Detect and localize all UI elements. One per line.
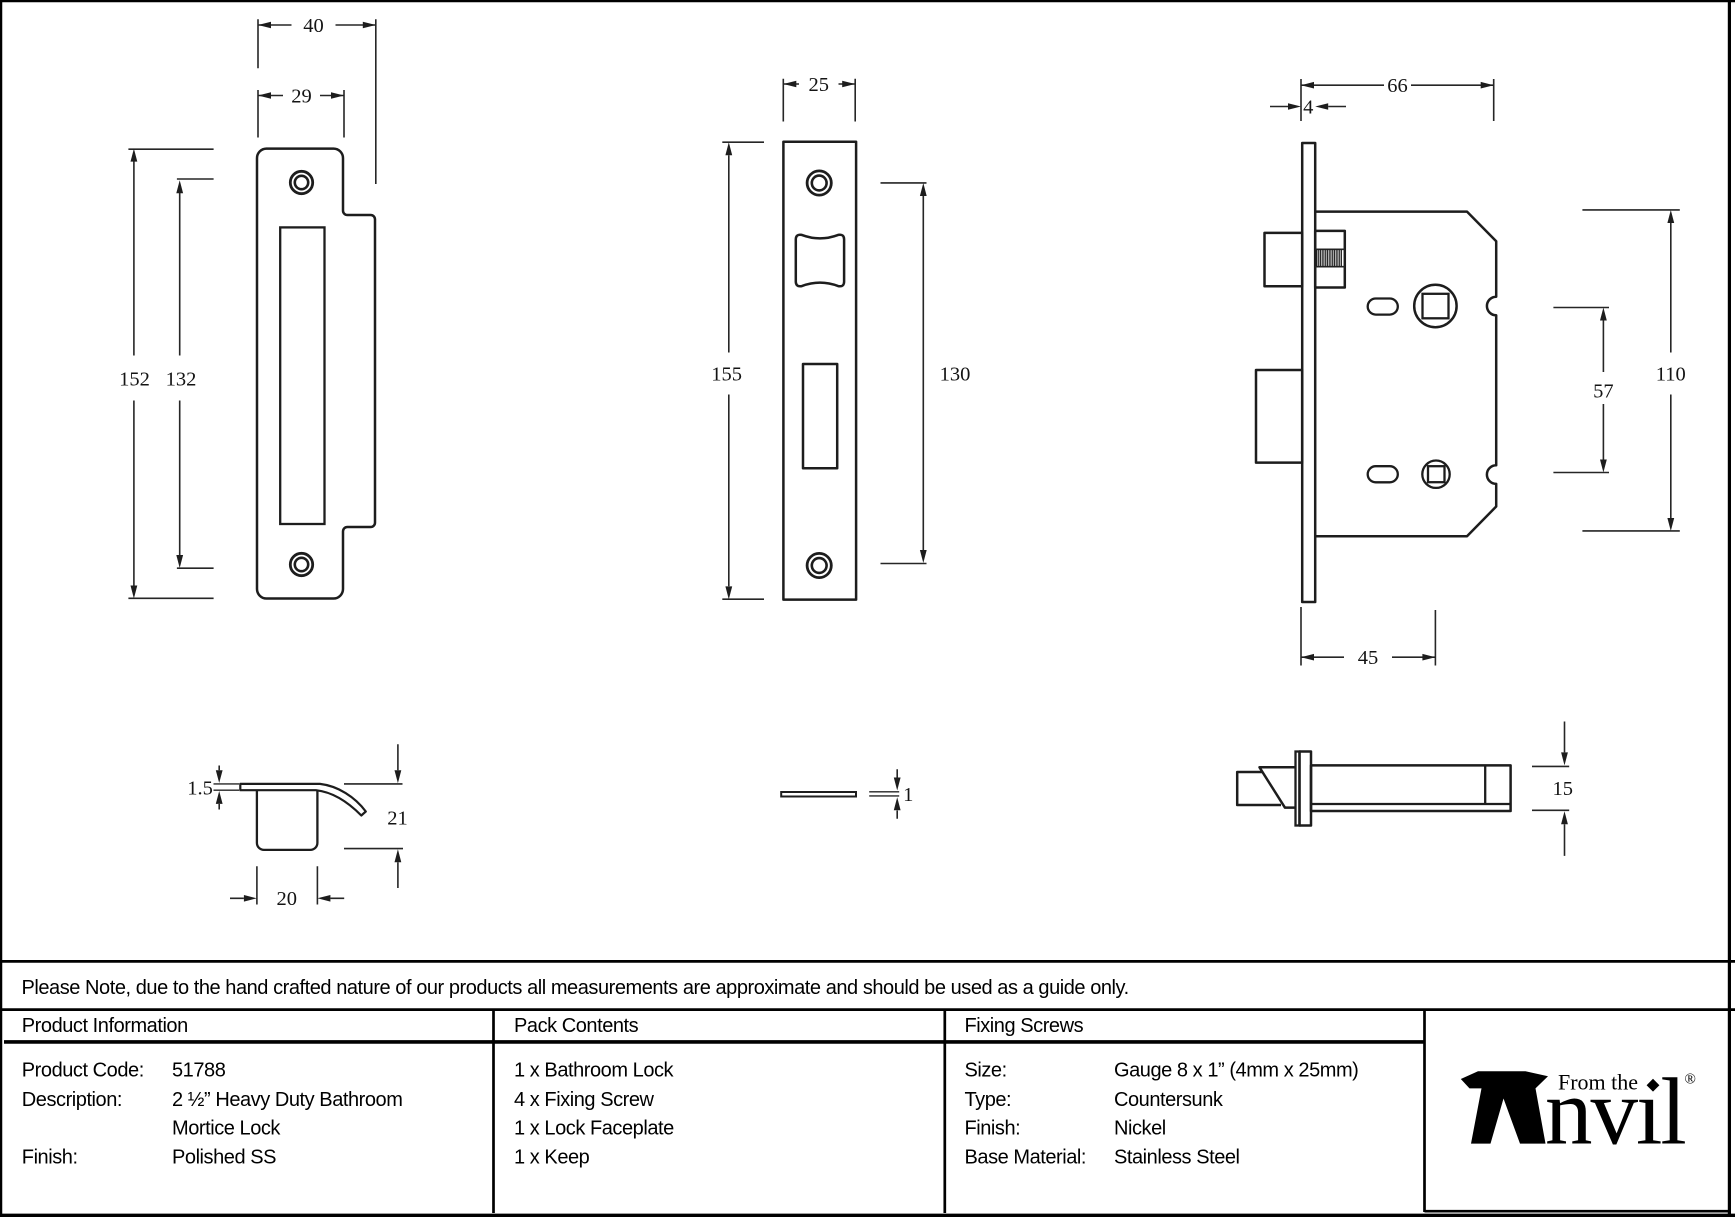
svg-text:29: 29 bbox=[291, 85, 312, 107]
svg-text:Finish:: Finish: bbox=[22, 1146, 78, 1168]
svg-text:25: 25 bbox=[809, 74, 830, 96]
svg-text:Base Material:: Base Material: bbox=[965, 1146, 1087, 1168]
svg-text:2 ½” Heavy Duty Bathroom: 2 ½” Heavy Duty Bathroom bbox=[172, 1089, 402, 1111]
svg-text:21: 21 bbox=[387, 807, 408, 829]
svg-text:130: 130 bbox=[940, 364, 971, 386]
svg-text:51788: 51788 bbox=[172, 1060, 226, 1082]
svg-text:1 x Lock Faceplate: 1 x Lock Faceplate bbox=[514, 1117, 674, 1139]
svg-text:Product Code:: Product Code: bbox=[22, 1060, 144, 1082]
svg-text:Pack Contents: Pack Contents bbox=[514, 1015, 639, 1037]
svg-text:Nickel: Nickel bbox=[1114, 1117, 1166, 1139]
svg-text:1 x Keep: 1 x Keep bbox=[514, 1146, 590, 1168]
svg-text:Description:: Description: bbox=[22, 1089, 122, 1111]
svg-text:40: 40 bbox=[303, 15, 324, 37]
svg-text:Polished SS: Polished SS bbox=[172, 1146, 276, 1168]
svg-text:Countersunk: Countersunk bbox=[1114, 1089, 1224, 1111]
svg-text:Type:: Type: bbox=[965, 1089, 1012, 1111]
svg-text:Gauge 8 x 1” (4mm x 25mm): Gauge 8 x 1” (4mm x 25mm) bbox=[1114, 1060, 1358, 1082]
svg-text:1: 1 bbox=[903, 784, 913, 806]
svg-text:Stainless Steel: Stainless Steel bbox=[1114, 1146, 1240, 1168]
svg-text:4: 4 bbox=[1303, 96, 1313, 118]
svg-text:57: 57 bbox=[1593, 381, 1614, 403]
svg-text:1.5: 1.5 bbox=[187, 777, 213, 799]
svg-text:Fixing Screws: Fixing Screws bbox=[965, 1015, 1084, 1037]
svg-text:Finish:: Finish: bbox=[965, 1117, 1021, 1139]
svg-text:45: 45 bbox=[1358, 647, 1379, 669]
svg-text:Please Note, due to the hand c: Please Note, due to the hand crafted nat… bbox=[22, 977, 1129, 999]
svg-text:Mortice Lock: Mortice Lock bbox=[172, 1117, 281, 1139]
svg-text:®: ® bbox=[1685, 1072, 1696, 1088]
svg-text:Size:: Size: bbox=[965, 1060, 1007, 1082]
svg-text:Product Information: Product Information bbox=[22, 1015, 188, 1037]
svg-text:132: 132 bbox=[166, 368, 197, 390]
svg-text:nvıl: nvıl bbox=[1545, 1059, 1685, 1165]
svg-text:155: 155 bbox=[711, 364, 742, 386]
svg-text:20: 20 bbox=[277, 888, 298, 910]
svg-text:152: 152 bbox=[119, 368, 150, 390]
svg-text:15: 15 bbox=[1553, 778, 1574, 800]
svg-text:4 x Fixing Screw: 4 x Fixing Screw bbox=[514, 1089, 655, 1111]
svg-text:1 x Bathroom Lock: 1 x Bathroom Lock bbox=[514, 1060, 675, 1082]
svg-text:66: 66 bbox=[1387, 75, 1408, 97]
svg-text:110: 110 bbox=[1656, 364, 1686, 386]
